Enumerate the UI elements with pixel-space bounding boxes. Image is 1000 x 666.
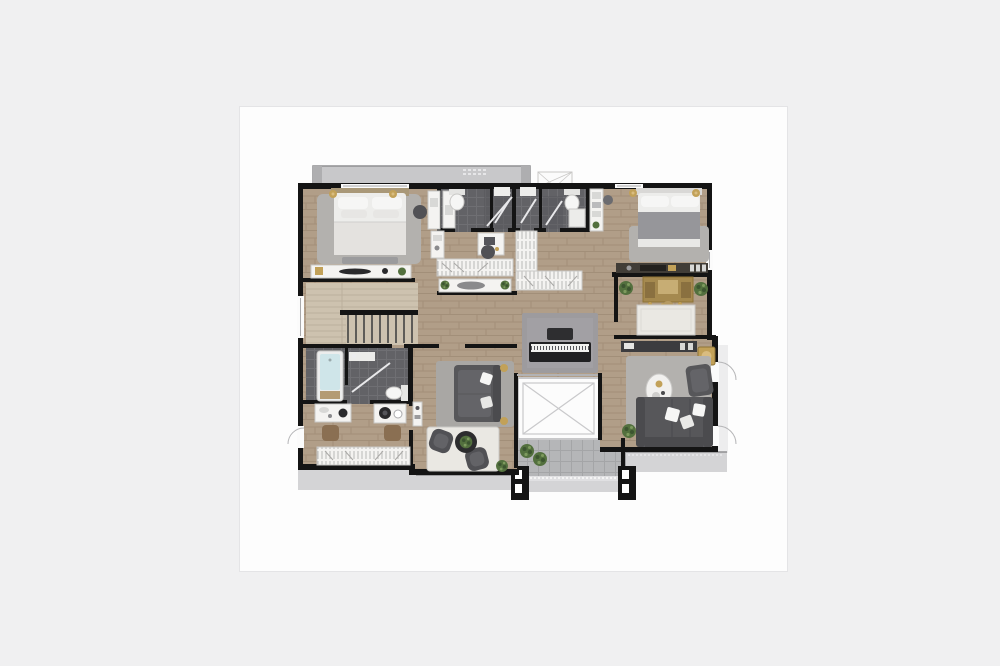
bed-1-bench	[342, 257, 398, 264]
sofa-pillow	[692, 403, 706, 417]
dressing-plant-2	[694, 282, 708, 296]
balcony-plant-1	[520, 444, 534, 458]
stair-railing	[340, 310, 418, 315]
floor-plan-image	[0, 0, 1000, 666]
dressing-plant-1	[619, 281, 633, 295]
media-plant	[496, 460, 508, 472]
bed-2-blanket	[638, 212, 700, 242]
toilet-tank	[564, 189, 580, 195]
vanity-counter-left	[315, 404, 351, 422]
media-daybed	[454, 365, 501, 422]
bedroom-2-chair	[603, 195, 613, 205]
piano-bench	[547, 328, 573, 340]
bedroom-1-desk	[428, 191, 440, 229]
bedroom-1-dresser	[311, 265, 411, 278]
closet-bench	[439, 279, 511, 292]
elevator-door-line	[517, 374, 598, 376]
balcony-plant-2	[533, 452, 547, 466]
bedroom-2-shelf	[590, 189, 603, 231]
round-plant-table	[455, 431, 477, 453]
bed-2-pillow	[641, 196, 669, 207]
bed-1-pillow	[338, 197, 368, 209]
piano-corner	[522, 313, 598, 373]
hall-cabinet	[431, 231, 444, 258]
tv-console	[621, 341, 697, 352]
bathtub	[317, 351, 343, 401]
vanity-stool-right	[384, 425, 401, 441]
ceiling-light	[500, 417, 508, 425]
living-armchair	[685, 363, 714, 397]
bedroom-2-console	[616, 263, 708, 273]
sectional-sofa	[636, 397, 713, 447]
closet-row-left	[437, 259, 513, 276]
dressing-rug	[637, 305, 695, 335]
living-plant	[622, 424, 636, 438]
bedroom-1-desk-chair	[413, 205, 427, 219]
wardrobe-row	[317, 447, 410, 465]
bed-1-blanket	[334, 222, 406, 255]
bed-2-pillow	[671, 196, 699, 207]
hall-desk	[478, 233, 504, 259]
shower-2-tray	[569, 209, 585, 227]
piano	[529, 342, 591, 362]
bed-1-pillow	[372, 197, 402, 209]
balcony-pier-right	[618, 466, 636, 500]
tall-cabinet	[413, 402, 422, 426]
staircase	[306, 283, 418, 345]
hall-desk-chair	[481, 245, 495, 259]
vanity-stool-left	[322, 425, 339, 441]
elevator	[517, 377, 600, 440]
ceiling-light	[500, 364, 508, 372]
living-room	[621, 341, 715, 447]
vanity-counter-right	[374, 404, 406, 423]
